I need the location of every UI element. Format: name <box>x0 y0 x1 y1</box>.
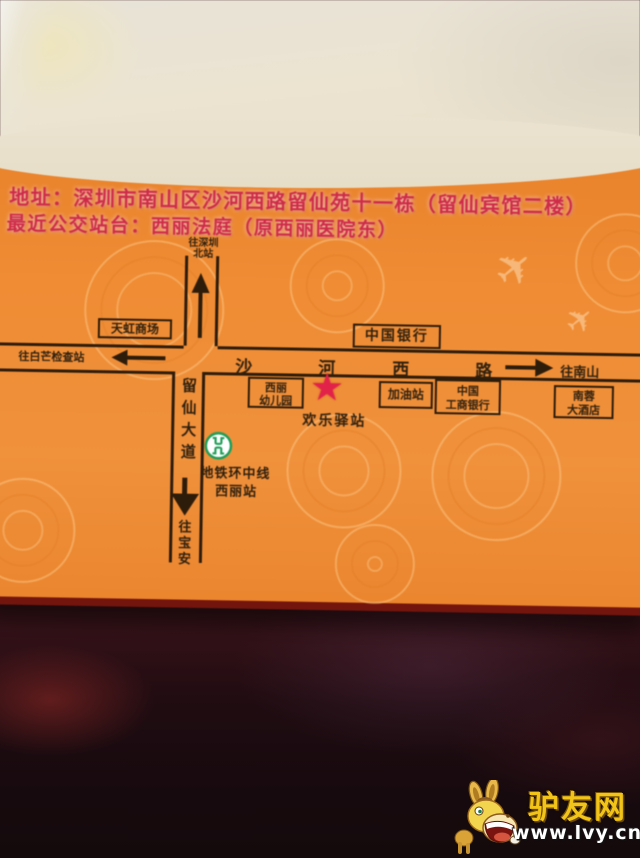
star-marker-icon: ★ <box>310 368 345 407</box>
label-to-baoan: 往宝安 <box>173 519 193 567</box>
box-xili-kindergarten: 西丽 幼儿园 <box>248 377 305 409</box>
arrow-right-stem <box>505 365 535 370</box>
label-to-shenzhen-north-line2: 北站 <box>176 248 230 260</box>
label-happy-station: 欢乐驿站 <box>302 410 366 431</box>
road-name-char: 沙 <box>235 353 252 378</box>
decorative-rings <box>0 477 76 584</box>
table-surface <box>0 0 640 152</box>
box-bank-of-china: 中国银行 <box>353 324 441 350</box>
box-xili-kindergarten-line2: 幼儿园 <box>250 394 302 408</box>
arrow-left-icon <box>111 349 127 365</box>
donkey-logo-icon <box>452 780 532 856</box>
watermark-site-name: 驴友网 <box>528 782 627 827</box>
box-nanrong-hotel-line1: 南蓉 <box>556 389 612 404</box>
box-xili-kindergarten-line1: 西丽 <box>250 381 302 395</box>
label-to-shenzhen-north: 往深圳 北站 <box>176 237 230 260</box>
box-tianhong-mall: 天虹商场 <box>98 318 172 339</box>
box-nanrong-hotel: 南蓉 大酒店 <box>553 385 614 419</box>
decorative-rings <box>574 212 640 314</box>
lvy-watermark: 驴友网 www.lvy.cn <box>452 778 638 856</box>
road-name-char: 西 <box>392 355 409 380</box>
road-name-liuxian-avenue: 留仙大道 <box>178 378 201 466</box>
label-metro-station: 西丽站 <box>215 480 257 500</box>
box-icbc-line2: 工商银行 <box>437 398 499 413</box>
decorative-rings <box>334 523 415 604</box>
airplane-icon: ✈ <box>482 235 546 301</box>
shenzhen-metro-icon <box>204 431 234 461</box>
decorative-rings <box>430 410 562 542</box>
box-nanrong-hotel-line2: 大酒店 <box>555 403 611 418</box>
photo-of-map-flyer: ✈ ✈ 地址：深圳市南山区沙河西路留仙苑十一栋（留仙宾馆二楼） 最近公交站台：西… <box>0 0 640 858</box>
box-gas-station: 加油站 <box>379 381 433 409</box>
label-to-nanshan: 往南山 <box>560 361 599 381</box>
decorative-rings <box>289 237 386 334</box>
box-icbc-line1: 中国 <box>437 384 499 399</box>
watermark-url: www.lvy.cn <box>512 822 640 844</box>
table-surface-edge <box>0 116 640 188</box>
box-icbc-bank: 中国 工商银行 <box>434 379 501 415</box>
label-metro-line: 地铁环中线 <box>200 462 270 482</box>
arrow-down-icon <box>171 493 199 515</box>
arrow-up-stem <box>198 291 203 338</box>
label-to-shenzhen-north-line1: 往深圳 <box>176 237 230 249</box>
road-name-char: 路 <box>475 357 492 382</box>
label-to-baimang-checkpoint: 往白芒检查站 <box>18 348 84 365</box>
orange-map-card: ✈ ✈ 地址：深圳市南山区沙河西路留仙苑十一栋（留仙宾馆二楼） 最近公交站台：西… <box>0 152 640 616</box>
arrow-left-stem <box>127 356 165 361</box>
arrow-right-icon <box>535 359 553 377</box>
